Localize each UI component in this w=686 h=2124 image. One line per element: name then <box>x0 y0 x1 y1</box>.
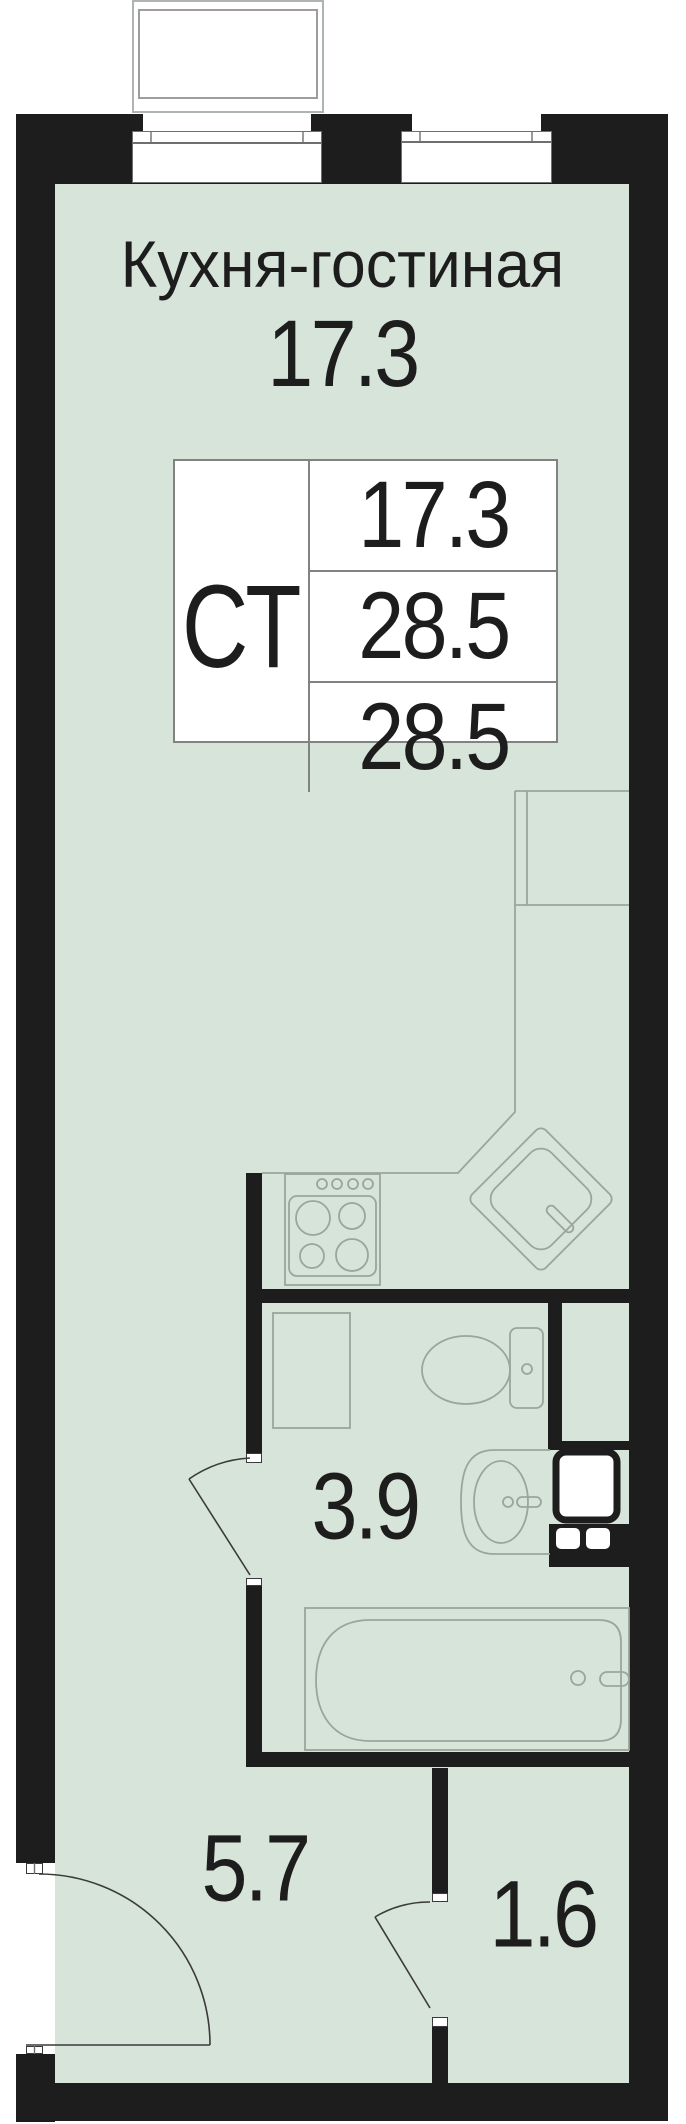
apartment-type-cell: СТ <box>175 461 308 792</box>
hall-door-swing <box>375 1902 430 2008</box>
table-value-total-area: 28.5 <box>308 570 556 681</box>
room-area-label: 17.3 <box>55 304 629 404</box>
entry-area-label: 1.6 <box>481 1861 604 1970</box>
toilet-icon <box>422 1328 543 1408</box>
room-title: Кухня-гостиная <box>55 226 629 302</box>
floor-plan: Кухня-гостиная 17.3 СТ 17.3 28.5 28.5 3.… <box>0 0 686 2124</box>
stove-icon <box>285 1174 380 1285</box>
apartment-info-table: СТ 17.3 28.5 28.5 <box>173 459 558 743</box>
kitchen-counter-icon <box>262 791 629 1173</box>
cabinet-icon <box>273 1313 350 1428</box>
window-frame-dividers <box>35 131 533 2054</box>
bathtub-icon <box>305 1608 629 1750</box>
washing-machine-icon <box>556 1452 617 1549</box>
hallway-area-label: 5.7 <box>193 1815 316 1924</box>
bathroom-door-swing <box>189 1458 250 1575</box>
kitchen-sink-icon <box>467 1125 614 1272</box>
table-value-living-area: 17.3 <box>308 461 556 570</box>
table-value-overall-area: 28.5 <box>308 681 556 792</box>
bathroom-sink-icon <box>461 1450 550 1554</box>
entrance-door-swing <box>26 1874 210 2045</box>
bathroom-area-label: 3.9 <box>303 1453 426 1562</box>
